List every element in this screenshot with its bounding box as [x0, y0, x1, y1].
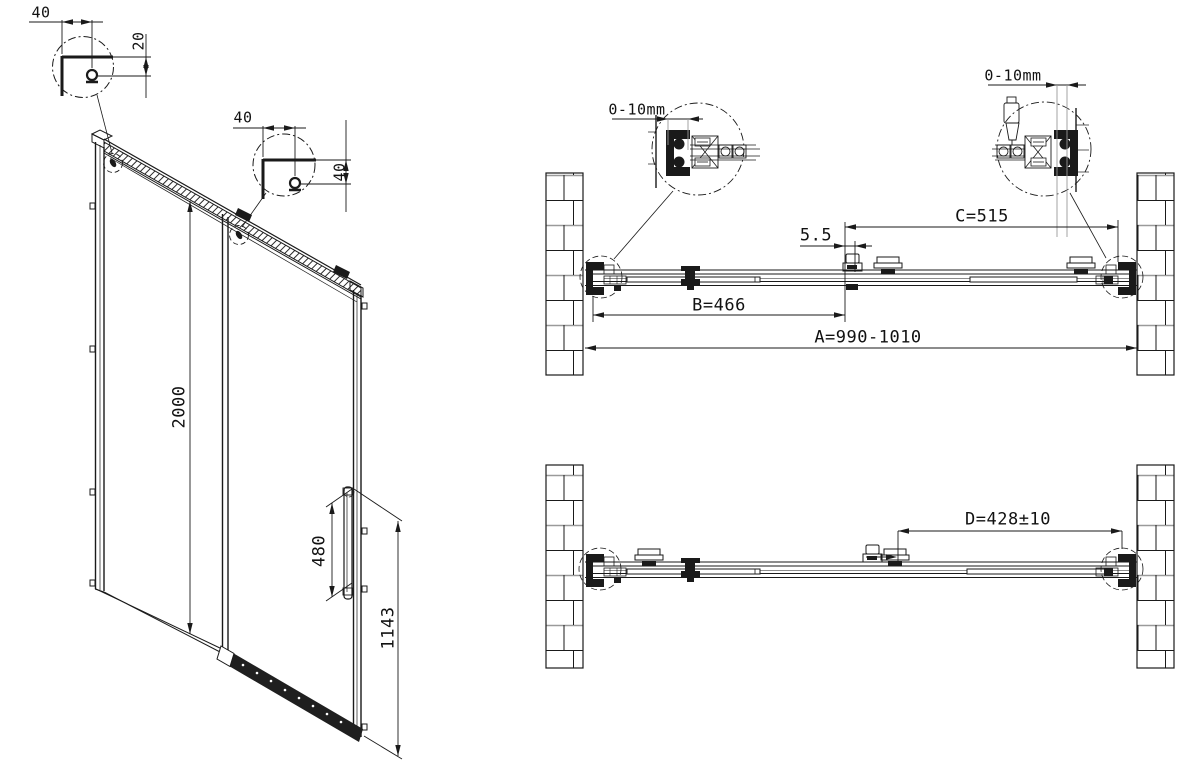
door-guide-stop: [863, 545, 882, 562]
dim-overlap: [800, 241, 872, 272]
dim-label-corner-width-mid: 40: [233, 111, 252, 126]
dim-label-corner-offset-top: 20: [132, 31, 147, 50]
roller-carriage: [1067, 257, 1095, 274]
screw-glyph: [86, 70, 98, 82]
screw-hole: [230, 226, 249, 245]
dim-label-overlap: 5.5: [800, 228, 832, 245]
wall-bracket-left: [579, 548, 626, 590]
technical-drawing-page: 40 20 40 40 2000 480 1143 0-10mm 0-10mm …: [0, 0, 1200, 772]
dim-label-a: A=990-1010: [814, 330, 921, 347]
dim-label-b: B=466: [692, 298, 746, 315]
wall-left: [546, 173, 583, 375]
roller-carriage: [874, 257, 902, 274]
sliding-glass-panel: [967, 569, 1107, 574]
dim-label-corner-width-top: 40: [31, 6, 50, 21]
wall-bracket-right: [1096, 256, 1143, 298]
roller-carriage: [635, 549, 663, 566]
detail-circle-bracket-right: [992, 97, 1106, 258]
wall-left: [546, 465, 583, 668]
dim-label-handle-height: 1143: [381, 607, 398, 650]
dim-label-c: C=515: [955, 209, 1009, 226]
dim-label-corner-offset-mid: 40: [333, 162, 348, 181]
dim-label-d: D=428±10: [965, 512, 1051, 529]
dim-label-wall-adjust-left: 0-10mm: [608, 103, 665, 118]
dim-label-handle-length: 480: [312, 535, 329, 567]
dim-label-wall-adjust-right: 0-10mm: [984, 69, 1041, 84]
roller-carriage: [881, 549, 909, 566]
dim-d: [866, 528, 1122, 562]
plan-view-open: [546, 465, 1174, 668]
wall-bracket-left: [580, 256, 626, 298]
door-frame: [90, 130, 367, 742]
sliding-glass-panel: [970, 277, 1077, 282]
door-handle: [343, 487, 354, 599]
dim-label-door-height: 2000: [172, 386, 189, 429]
screw-glyph: [289, 178, 301, 190]
front-isometric-view: [29, 19, 402, 759]
detail-circle-bracket-left: [614, 103, 760, 259]
door-guide-stop: [843, 254, 862, 290]
